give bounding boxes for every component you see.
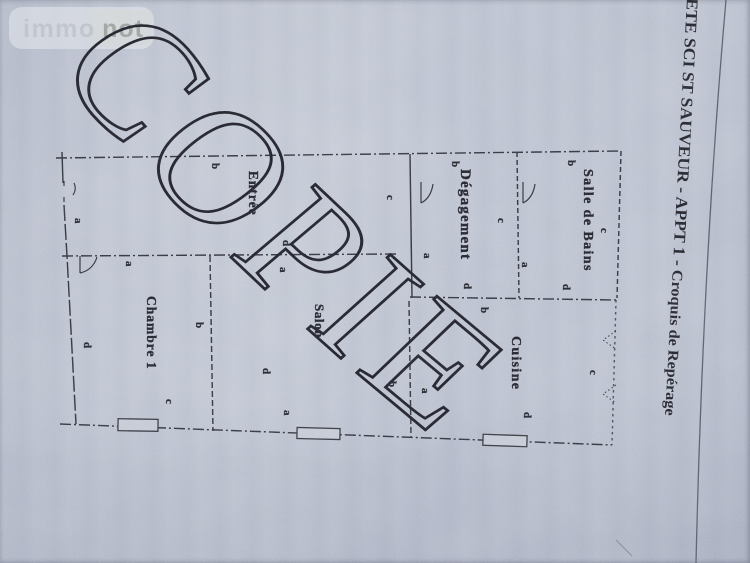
svg-text:COPIE: COPIE [22,0,550,469]
